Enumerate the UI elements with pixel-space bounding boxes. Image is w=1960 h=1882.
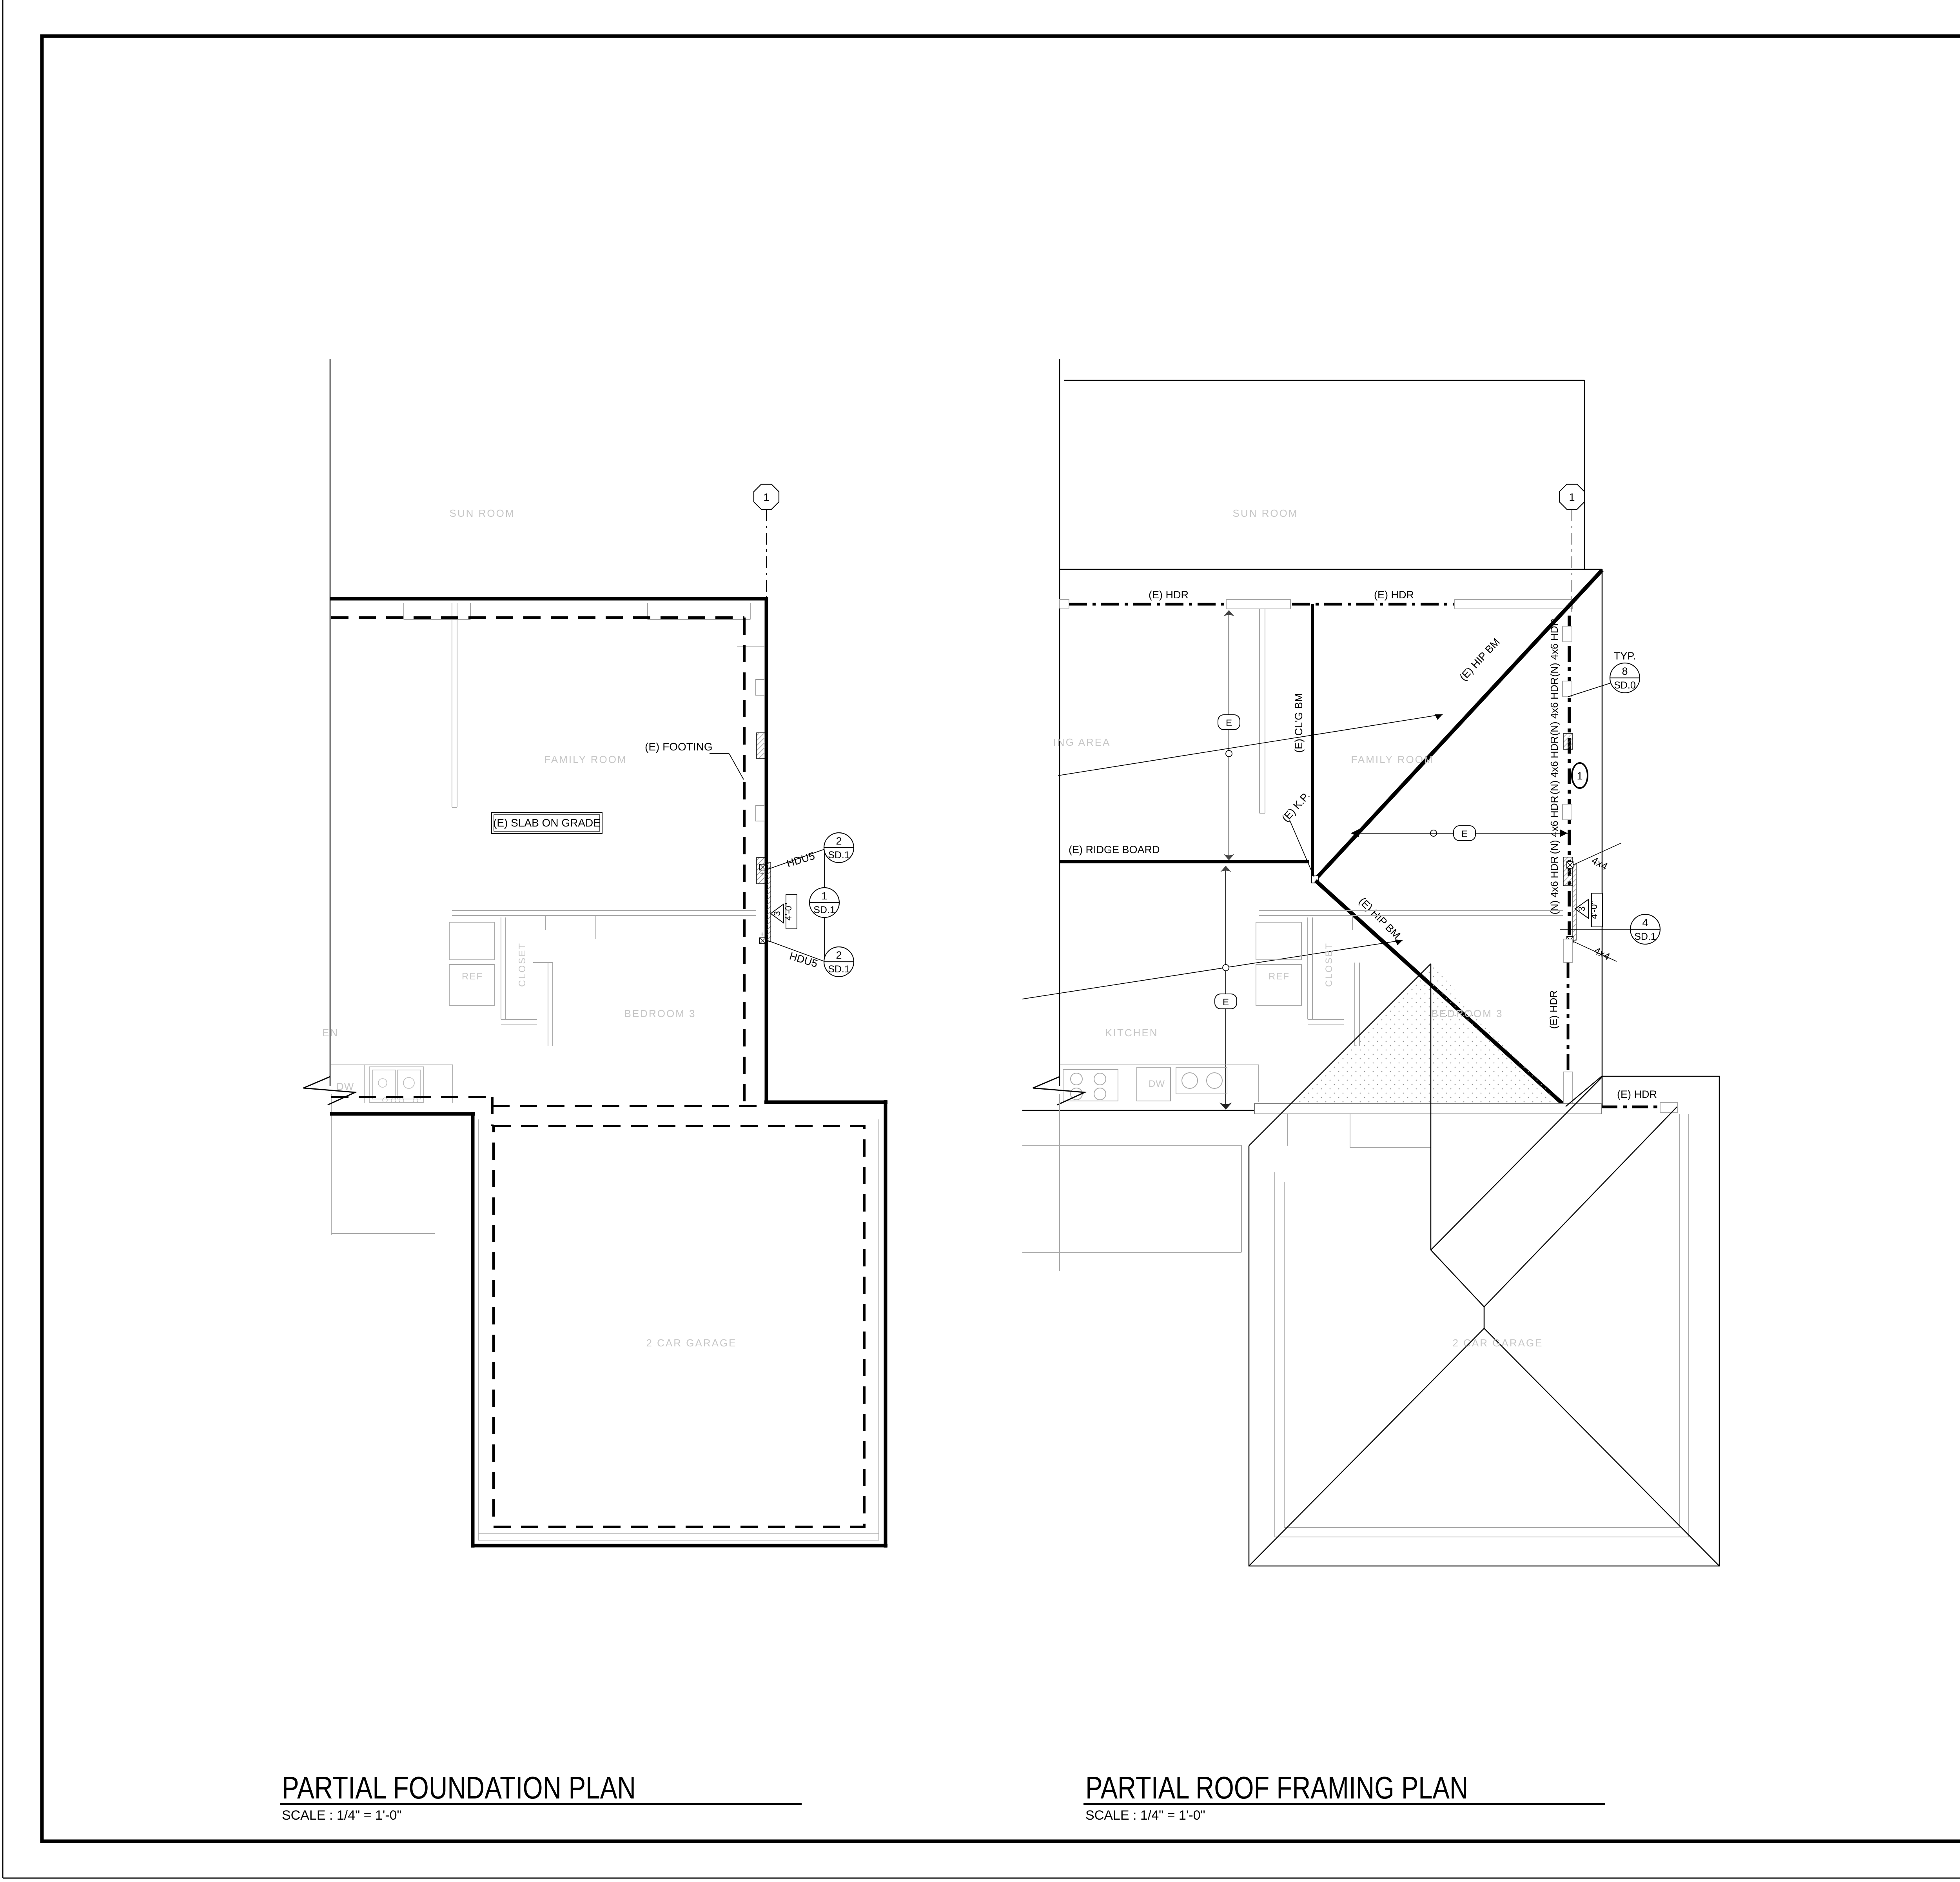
svg-text:3: 3: [772, 911, 782, 916]
svg-text:SUN ROOM: SUN ROOM: [1233, 507, 1298, 519]
svg-text:SD.1: SD.1: [1634, 931, 1656, 942]
svg-text:(E) HDR: (E) HDR: [1617, 1088, 1657, 1100]
svg-text:SCALE : 1/4" = 1'-0": SCALE : 1/4" = 1'-0": [282, 1808, 402, 1823]
svg-text:(E) CL'G BM: (E) CL'G BM: [1293, 693, 1305, 753]
svg-text:+: +: [760, 930, 764, 938]
svg-text:TYP.: TYP.: [1614, 650, 1636, 662]
svg-text:1: 1: [1577, 770, 1583, 782]
svg-text:ING AREA: ING AREA: [1053, 736, 1111, 748]
svg-text:(E) FOOTING: (E) FOOTING: [645, 741, 713, 753]
svg-text:2: 2: [836, 835, 842, 847]
svg-text:(N) 4x6 HDR: (N) 4x6 HDR: [1548, 678, 1560, 736]
svg-text:4'-0": 4'-0": [783, 903, 793, 921]
svg-text:(E) HDR: (E) HDR: [1548, 990, 1559, 1029]
svg-text:8: 8: [1622, 665, 1628, 677]
svg-text:1: 1: [1569, 491, 1575, 503]
svg-text:SD.1: SD.1: [828, 850, 850, 861]
svg-text:DW: DW: [1149, 1079, 1165, 1089]
svg-text:4: 4: [1642, 917, 1648, 928]
svg-text:EN: EN: [322, 1027, 339, 1039]
svg-text:(N) 4x6 HDR: (N) 4x6 HDR: [1548, 796, 1560, 854]
svg-text:SD.1: SD.1: [828, 964, 850, 975]
svg-text:E: E: [1461, 829, 1468, 839]
svg-text:(E) RIDGE BOARD: (E) RIDGE BOARD: [1069, 844, 1160, 856]
svg-text:CLOSET: CLOSET: [1324, 942, 1334, 987]
svg-text:(N) 4x6 HDR: (N) 4x6 HDR: [1548, 619, 1560, 677]
svg-text:2 CAR GARAGE: 2 CAR GARAGE: [1452, 1337, 1543, 1349]
svg-text:PARTIAL FOUNDATION PLAN: PARTIAL FOUNDATION PLAN: [282, 1770, 636, 1805]
svg-text:SCALE : 1/4" = 1'-0": SCALE : 1/4" = 1'-0": [1085, 1808, 1205, 1823]
svg-text:REF: REF: [1269, 971, 1290, 982]
svg-text:(N) 4x6 HDR: (N) 4x6 HDR: [1548, 736, 1560, 795]
svg-text:(E) HDR: (E) HDR: [1149, 589, 1189, 601]
svg-text:+: +: [760, 870, 764, 877]
svg-text:1: 1: [821, 890, 827, 902]
svg-text:FAMILY ROOM: FAMILY ROOM: [544, 754, 627, 765]
svg-text:BEDROOM 3: BEDROOM 3: [624, 1008, 696, 1019]
svg-text:SD.0: SD.0: [1614, 680, 1636, 691]
svg-text:REF: REF: [462, 971, 483, 982]
svg-text:4'-0": 4'-0": [1589, 901, 1599, 919]
svg-text:KITCHEN: KITCHEN: [1105, 1027, 1158, 1039]
svg-text:E: E: [1226, 718, 1232, 728]
svg-text:FAMILY ROOM: FAMILY ROOM: [1351, 754, 1434, 765]
svg-text:BEDROOM 3: BEDROOM 3: [1431, 1008, 1503, 1019]
svg-text:(E) HDR: (E) HDR: [1374, 589, 1414, 601]
svg-text:SD.1: SD.1: [813, 905, 835, 916]
svg-text:(E) SLAB ON GRADE: (E) SLAB ON GRADE: [493, 817, 601, 829]
svg-text:2: 2: [836, 949, 842, 961]
svg-text:(N) 4x6 HDR: (N) 4x6 HDR: [1548, 856, 1560, 915]
svg-text:3: 3: [1577, 906, 1587, 912]
svg-text:SUN ROOM: SUN ROOM: [450, 507, 515, 519]
svg-text:CLOSET: CLOSET: [517, 942, 528, 987]
svg-text:2 CAR GARAGE: 2 CAR GARAGE: [646, 1337, 737, 1349]
svg-text:PARTIAL ROOF FRAMING PLAN: PARTIAL ROOF FRAMING PLAN: [1085, 1770, 1468, 1805]
svg-text:E: E: [1223, 997, 1229, 1008]
svg-text:1: 1: [763, 491, 769, 503]
